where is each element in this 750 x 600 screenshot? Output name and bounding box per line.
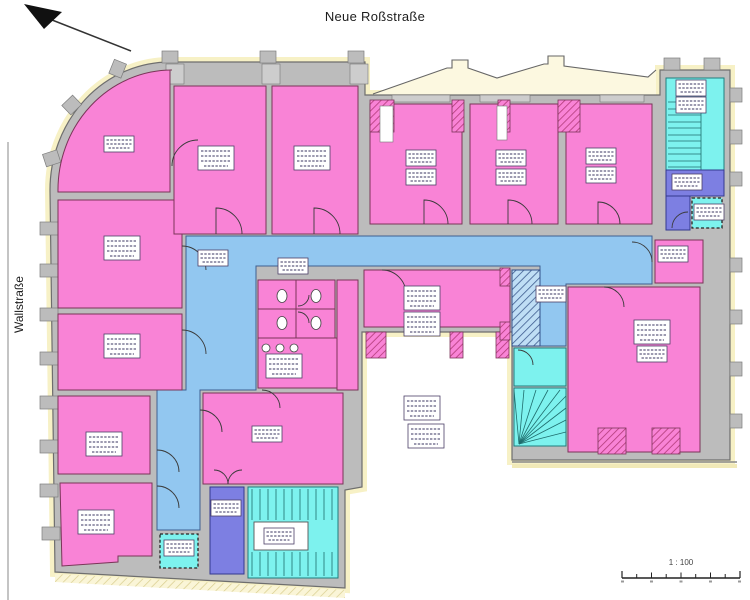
sink-fixture bbox=[290, 344, 298, 352]
toilet-fixture bbox=[277, 317, 287, 330]
street-label-left: Wallstraße bbox=[12, 276, 26, 333]
scale-bar bbox=[621, 571, 741, 583]
floor-plan-drawing bbox=[0, 0, 750, 600]
toilet-fixture bbox=[277, 290, 287, 303]
toilet-fixture bbox=[311, 290, 321, 303]
toilet-fixture bbox=[311, 317, 321, 330]
street-label-top: Neue Roßstraße bbox=[0, 9, 750, 24]
floor-plan-canvas: Neue Roßstraße Wallstraße 1 : 100 bbox=[0, 0, 750, 600]
sink-fixture bbox=[276, 344, 284, 352]
room bbox=[568, 287, 700, 452]
room bbox=[58, 70, 172, 192]
sink-fixture bbox=[262, 344, 270, 352]
awning-zigzag bbox=[373, 56, 656, 95]
room bbox=[337, 280, 358, 390]
scale-ratio-label: 1 : 100 bbox=[640, 558, 722, 567]
